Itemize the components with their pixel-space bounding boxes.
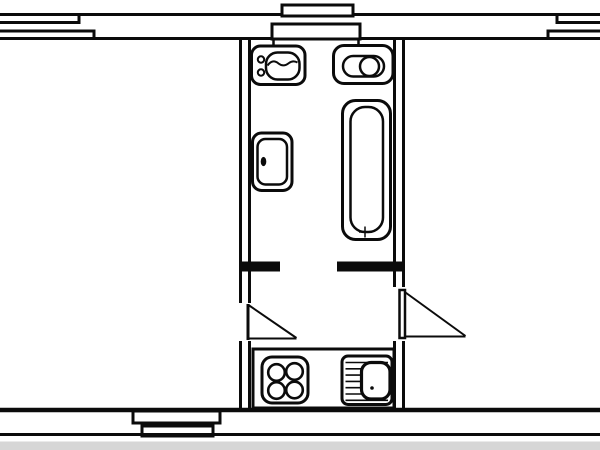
kitchen-sink-drain-dot	[370, 386, 374, 390]
kitchen-sink-basin	[362, 363, 391, 400]
washbasin-top-bowl	[360, 57, 379, 76]
window-top-left-outer-pane	[0, 15, 79, 23]
right-room-door-swing	[406, 293, 466, 337]
floor-plan-image	[0, 0, 600, 450]
window-bottom-outer-frame	[133, 411, 220, 423]
window-top-right-inner-pane	[548, 31, 600, 38]
washbasin-left-faucet	[261, 157, 267, 166]
window-top-left-inner-pane	[0, 31, 94, 38]
vent-block-lower	[272, 24, 360, 39]
photo-bottom-strip	[0, 442, 600, 450]
right-room-door-leaf	[400, 290, 406, 338]
floor-plan-drawing	[0, 0, 600, 450]
window-top-right-outer-pane	[557, 15, 600, 23]
left-room-door-swing	[249, 305, 297, 338]
vent-block-upper	[282, 5, 353, 16]
